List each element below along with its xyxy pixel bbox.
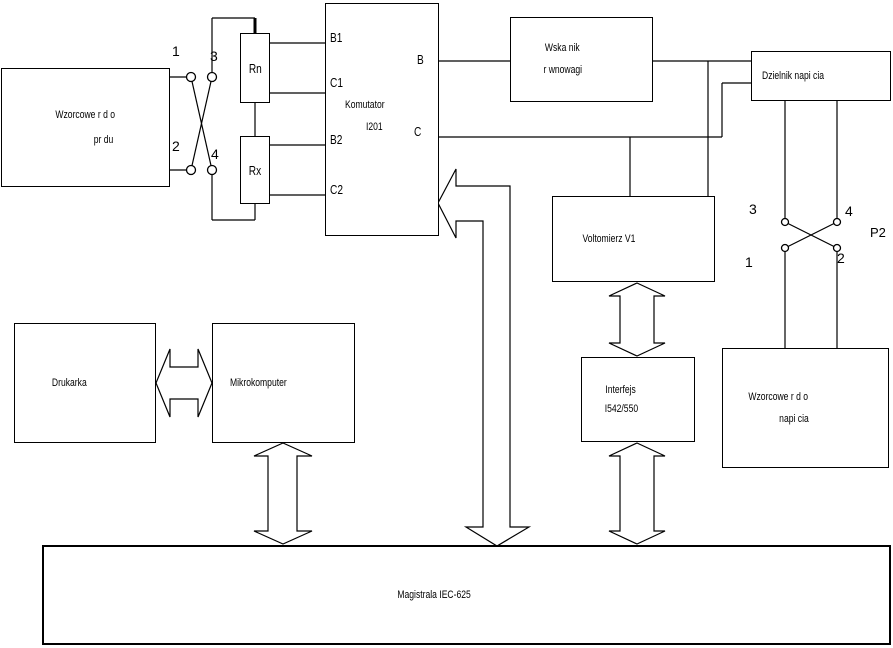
p1-contact-1: [187, 73, 196, 82]
box-bus-iec-625: Magistrala IEC-625: [42, 545, 891, 645]
p2-contact-label-4: 4: [845, 204, 853, 219]
p2-contact-label-1: 1: [745, 255, 753, 270]
p1-contact-label-3: 3: [210, 49, 218, 64]
arrow-printer-microcomputer: [156, 349, 212, 417]
arrow-komutator-bus: [438, 169, 529, 546]
terminal-label-c: C: [414, 125, 421, 138]
p2-contact-label-3: 3: [749, 202, 757, 217]
box-label: Drukarka: [52, 377, 87, 390]
box-reference-current-source: Wzorcowe r d o pr du: [1, 68, 170, 187]
p2-contact-4: [834, 219, 841, 226]
p1-contact-3: [208, 73, 217, 82]
box-label: Wska nik: [545, 42, 580, 55]
box-microcomputer: Mikrokomputer: [212, 323, 355, 443]
box-voltmeter-v1: Voltomierz V1: [552, 196, 715, 282]
wire-crossover: [191, 77, 212, 170]
wire-crossover: [785, 222, 837, 248]
box-label: Voltomierz V1: [582, 233, 635, 246]
p2-contact-1: [782, 245, 789, 252]
box-label: I542/550: [604, 403, 637, 416]
box-balance-indicator: Wska nik r wnowagi: [510, 17, 653, 102]
box-label: Rn: [249, 62, 262, 75]
terminal-label-b: B: [417, 53, 424, 66]
box-label: Mikrokomputer: [230, 377, 287, 390]
box-label: Magistrala IEC-625: [398, 589, 471, 602]
p1-contact-label-1: 1: [172, 44, 180, 59]
arrow-interface-bus: [609, 443, 665, 544]
box-label: Interfejs: [606, 384, 637, 397]
box-reference-voltage-source: Wzorcowe r d o napi cia: [722, 348, 889, 468]
box-label: napi cia: [779, 413, 809, 426]
wire-crossover: [191, 77, 212, 170]
box-resistor-rn: Rn: [240, 33, 270, 103]
p2-contact-3: [782, 219, 789, 226]
box-label: Wzorcowe r d o: [748, 391, 808, 404]
terminal-label-b2: B2: [330, 133, 342, 146]
box-label: pr du: [94, 134, 114, 147]
p2-switch-label: P2: [870, 226, 886, 240]
box-label: Dzielnik napi cia: [762, 70, 824, 83]
arrow-microcomputer-bus: [254, 443, 312, 544]
terminal-label-c1: C1: [330, 76, 343, 89]
block-diagram: Wzorcowe r d o pr du Rn Rx B1 C1 B2 C2 K…: [0, 0, 893, 648]
box-label: r wnowagi: [543, 64, 582, 77]
box-label: Rx: [249, 164, 261, 177]
terminal-label-b1: B1: [330, 31, 342, 44]
box-resistor-rx: Rx: [240, 136, 270, 204]
wires-group: [170, 18, 837, 348]
box-label: I201: [366, 121, 383, 134]
box-interface: Interfejs I542/550: [581, 357, 695, 442]
box-label: Wzorcowe r d o: [56, 109, 116, 122]
terminal-label-c2: C2: [330, 183, 343, 196]
p2-contact-label-2: 2: [837, 251, 845, 266]
wire-crossover: [785, 222, 837, 248]
p1-contact-4: [208, 166, 217, 175]
p1-contact-label-2: 2: [172, 139, 180, 154]
p1-contact-label-4: 4: [211, 147, 219, 162]
box-printer: Drukarka: [14, 323, 156, 443]
p1-contact-2: [187, 166, 196, 175]
box-komutator: B1 C1 B2 C2 Komutator I201 B C: [325, 3, 439, 236]
arrow-voltmeter-interface: [609, 283, 665, 356]
box-label: Komutator: [345, 99, 385, 112]
box-voltage-divider: Dzielnik napi cia: [751, 51, 891, 101]
